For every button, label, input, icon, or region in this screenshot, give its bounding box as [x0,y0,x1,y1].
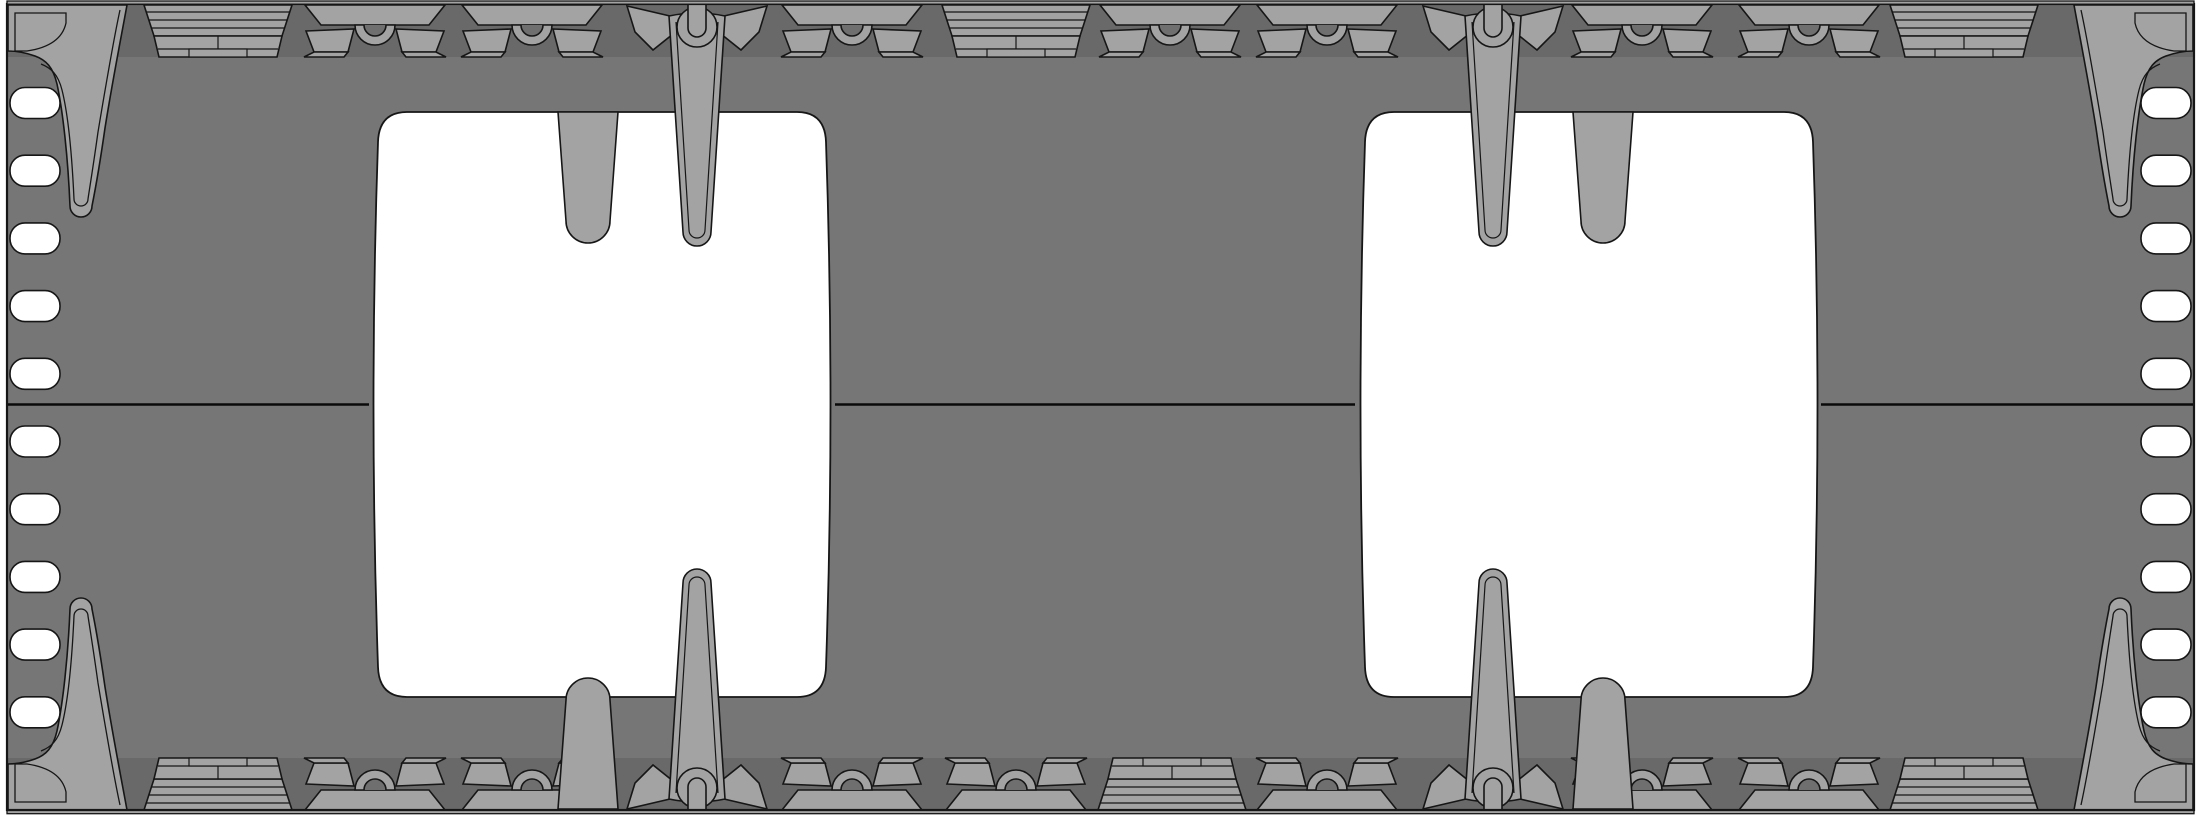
tray-technical-drawing [0,0,2201,815]
plate-body [7,4,2194,810]
top-cap-strip [7,1,2194,4]
guide-finger-top [1573,112,1633,243]
edge-slot [10,494,60,525]
edge-slot [2141,88,2191,119]
edge-slot [10,358,60,389]
edge-slot [2141,494,2191,525]
bottom-cap-strip [7,811,2194,814]
edge-slot [2141,629,2191,660]
edge-slot [10,223,60,254]
edge-slot [10,697,60,728]
guide-finger-bottom [1573,678,1633,809]
edge-slot [2141,561,2191,592]
edge-slot [2141,155,2191,186]
guide-finger-bottom [558,678,618,809]
edge-slot [10,291,60,322]
edge-slot [10,426,60,457]
edge-slot [10,629,60,660]
retainer-block-top [1890,5,2038,57]
retainer-block-bottom [1890,758,2038,810]
retainer-block-bottom [144,758,292,810]
edge-slot [2141,697,2191,728]
retainer-block-bottom [1098,758,1246,810]
edge-slot [2141,358,2191,389]
drawing-stage [0,0,2201,815]
edge-slot [2141,223,2191,254]
edge-slot [10,155,60,186]
edge-slot [10,88,60,119]
retainer-block-top [144,5,292,57]
edge-slot [10,561,60,592]
edge-slot [2141,291,2191,322]
retainer-block-top [942,5,1090,57]
edge-slot [2141,426,2191,457]
guide-finger-top [558,112,618,243]
